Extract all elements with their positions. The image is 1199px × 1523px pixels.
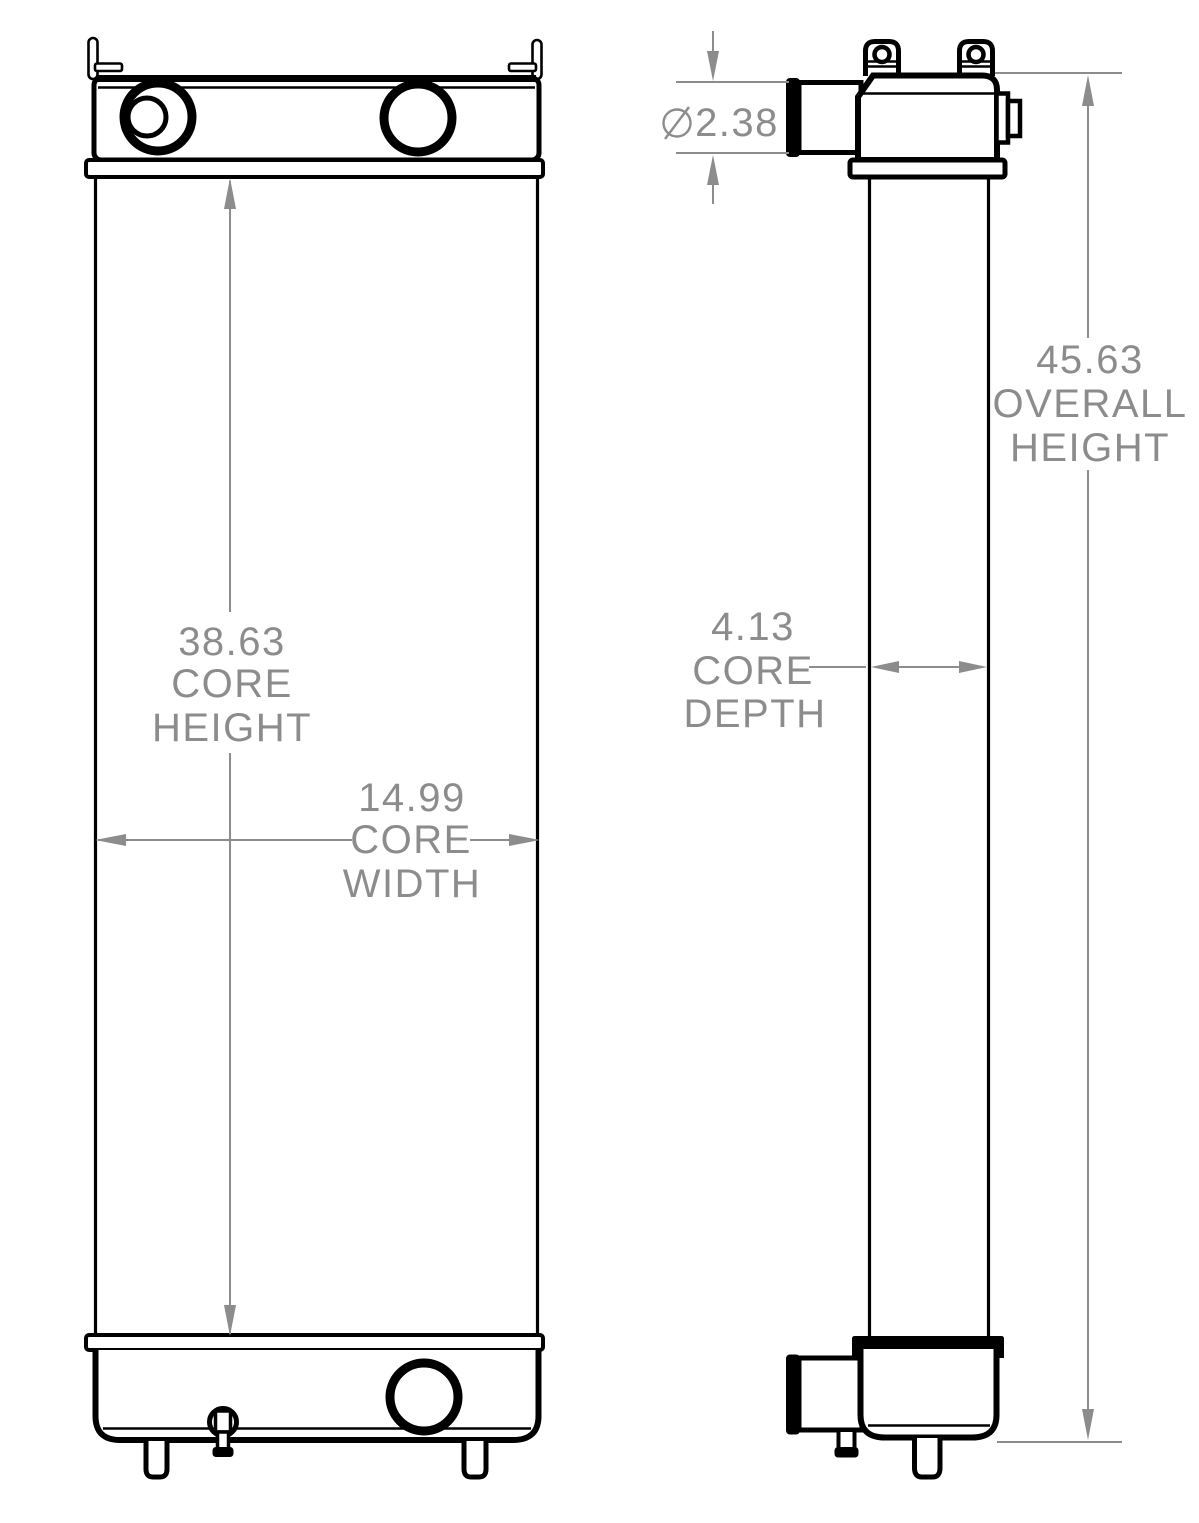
core-depth-value: 4.13: [711, 605, 795, 649]
side-foot: [915, 1438, 941, 1477]
core-height-value: 38.63: [178, 620, 286, 664]
core-height-label-1: CORE: [171, 662, 293, 706]
core-width-label-2: WIDTH: [343, 862, 482, 906]
front-filler-port-ring: [384, 84, 452, 152]
side-right-hook-hole: [969, 47, 984, 62]
side-outlet-pipe-cap: [786, 1355, 800, 1435]
arrow-right-icon: [509, 834, 540, 846]
dimensions: 38.63 CORE HEIGHT 14.99 CORE WIDTH 4.13 …: [95, 31, 1188, 1442]
front-left-bracket: [89, 38, 98, 79]
side-fitting-cap: [1008, 101, 1020, 136]
pipe-diameter-value: 2.38: [695, 101, 779, 145]
arrow-up-icon: [1082, 75, 1094, 106]
side-bottom-tank: [861, 1349, 997, 1438]
core-depth-dimension: 4.13 CORE DEPTH: [683, 605, 987, 736]
front-view: [86, 38, 543, 1477]
side-view: [786, 42, 1020, 1478]
front-left-bracket-tab: [95, 64, 122, 72]
side-outlet-pipe: [799, 1358, 862, 1430]
core-width-value: 14.99: [358, 776, 466, 820]
side-inlet-pipe-cap: [786, 78, 800, 157]
side-drain-stem: [839, 1430, 855, 1449]
core-depth-label-1: CORE: [692, 649, 814, 693]
front-right-bracket: [533, 40, 542, 79]
pipe-diameter-dimension: 2.38: [664, 31, 790, 204]
front-inlet-port-inner: [128, 98, 166, 136]
front-bottom-tank: [96, 1350, 539, 1440]
arrow-right-icon: [959, 661, 987, 673]
front-outlet-port-ring: [390, 1363, 458, 1431]
arrow-left-icon: [95, 834, 126, 846]
overall-height-label-2: HEIGHT: [1010, 426, 1170, 470]
side-inlet-pipe: [799, 83, 861, 153]
drawing-canvas: 38.63 CORE HEIGHT 14.99 CORE WIDTH 4.13 …: [0, 0, 1199, 1523]
arrow-down-icon: [707, 51, 719, 81]
side-top-header: [850, 160, 1005, 177]
front-right-foot: [464, 1441, 486, 1477]
side-drain-cap: [835, 1447, 859, 1458]
front-drain-stem: [218, 1432, 229, 1449]
front-drain-plug: [216, 1411, 231, 1432]
core-depth-label-2: DEPTH: [683, 692, 826, 736]
overall-height-value: 45.63: [1036, 338, 1144, 382]
arrow-left-icon: [871, 661, 899, 673]
front-left-foot: [146, 1441, 167, 1477]
front-bottom-header: [86, 1335, 543, 1350]
front-top-header: [86, 160, 543, 177]
arrow-down-icon: [224, 1305, 236, 1336]
front-right-bracket-tab: [509, 64, 536, 72]
core-height-label-2: HEIGHT: [152, 706, 312, 750]
core-height-dimension: 38.63 CORE HEIGHT: [152, 178, 312, 1336]
overall-height-dimension: 45.63 OVERALL HEIGHT: [992, 73, 1187, 1442]
side-top-tank: [858, 76, 997, 161]
side-bottom-header: [852, 1336, 1004, 1350]
arrow-up-icon: [224, 178, 236, 209]
arrow-up-icon: [707, 155, 719, 185]
diameter-symbol-icon: [664, 107, 691, 139]
front-drain-cap: [213, 1447, 234, 1457]
core-width-label-1: CORE: [350, 818, 472, 862]
side-left-hook-hole: [875, 47, 890, 62]
core-width-dimension: 14.99 CORE WIDTH: [95, 776, 540, 906]
overall-height-label-1: OVERALL: [992, 382, 1187, 426]
radiator-drawing: 38.63 CORE HEIGHT 14.99 CORE WIDTH 4.13 …: [0, 0, 1199, 1523]
arrow-down-icon: [1082, 1409, 1094, 1440]
